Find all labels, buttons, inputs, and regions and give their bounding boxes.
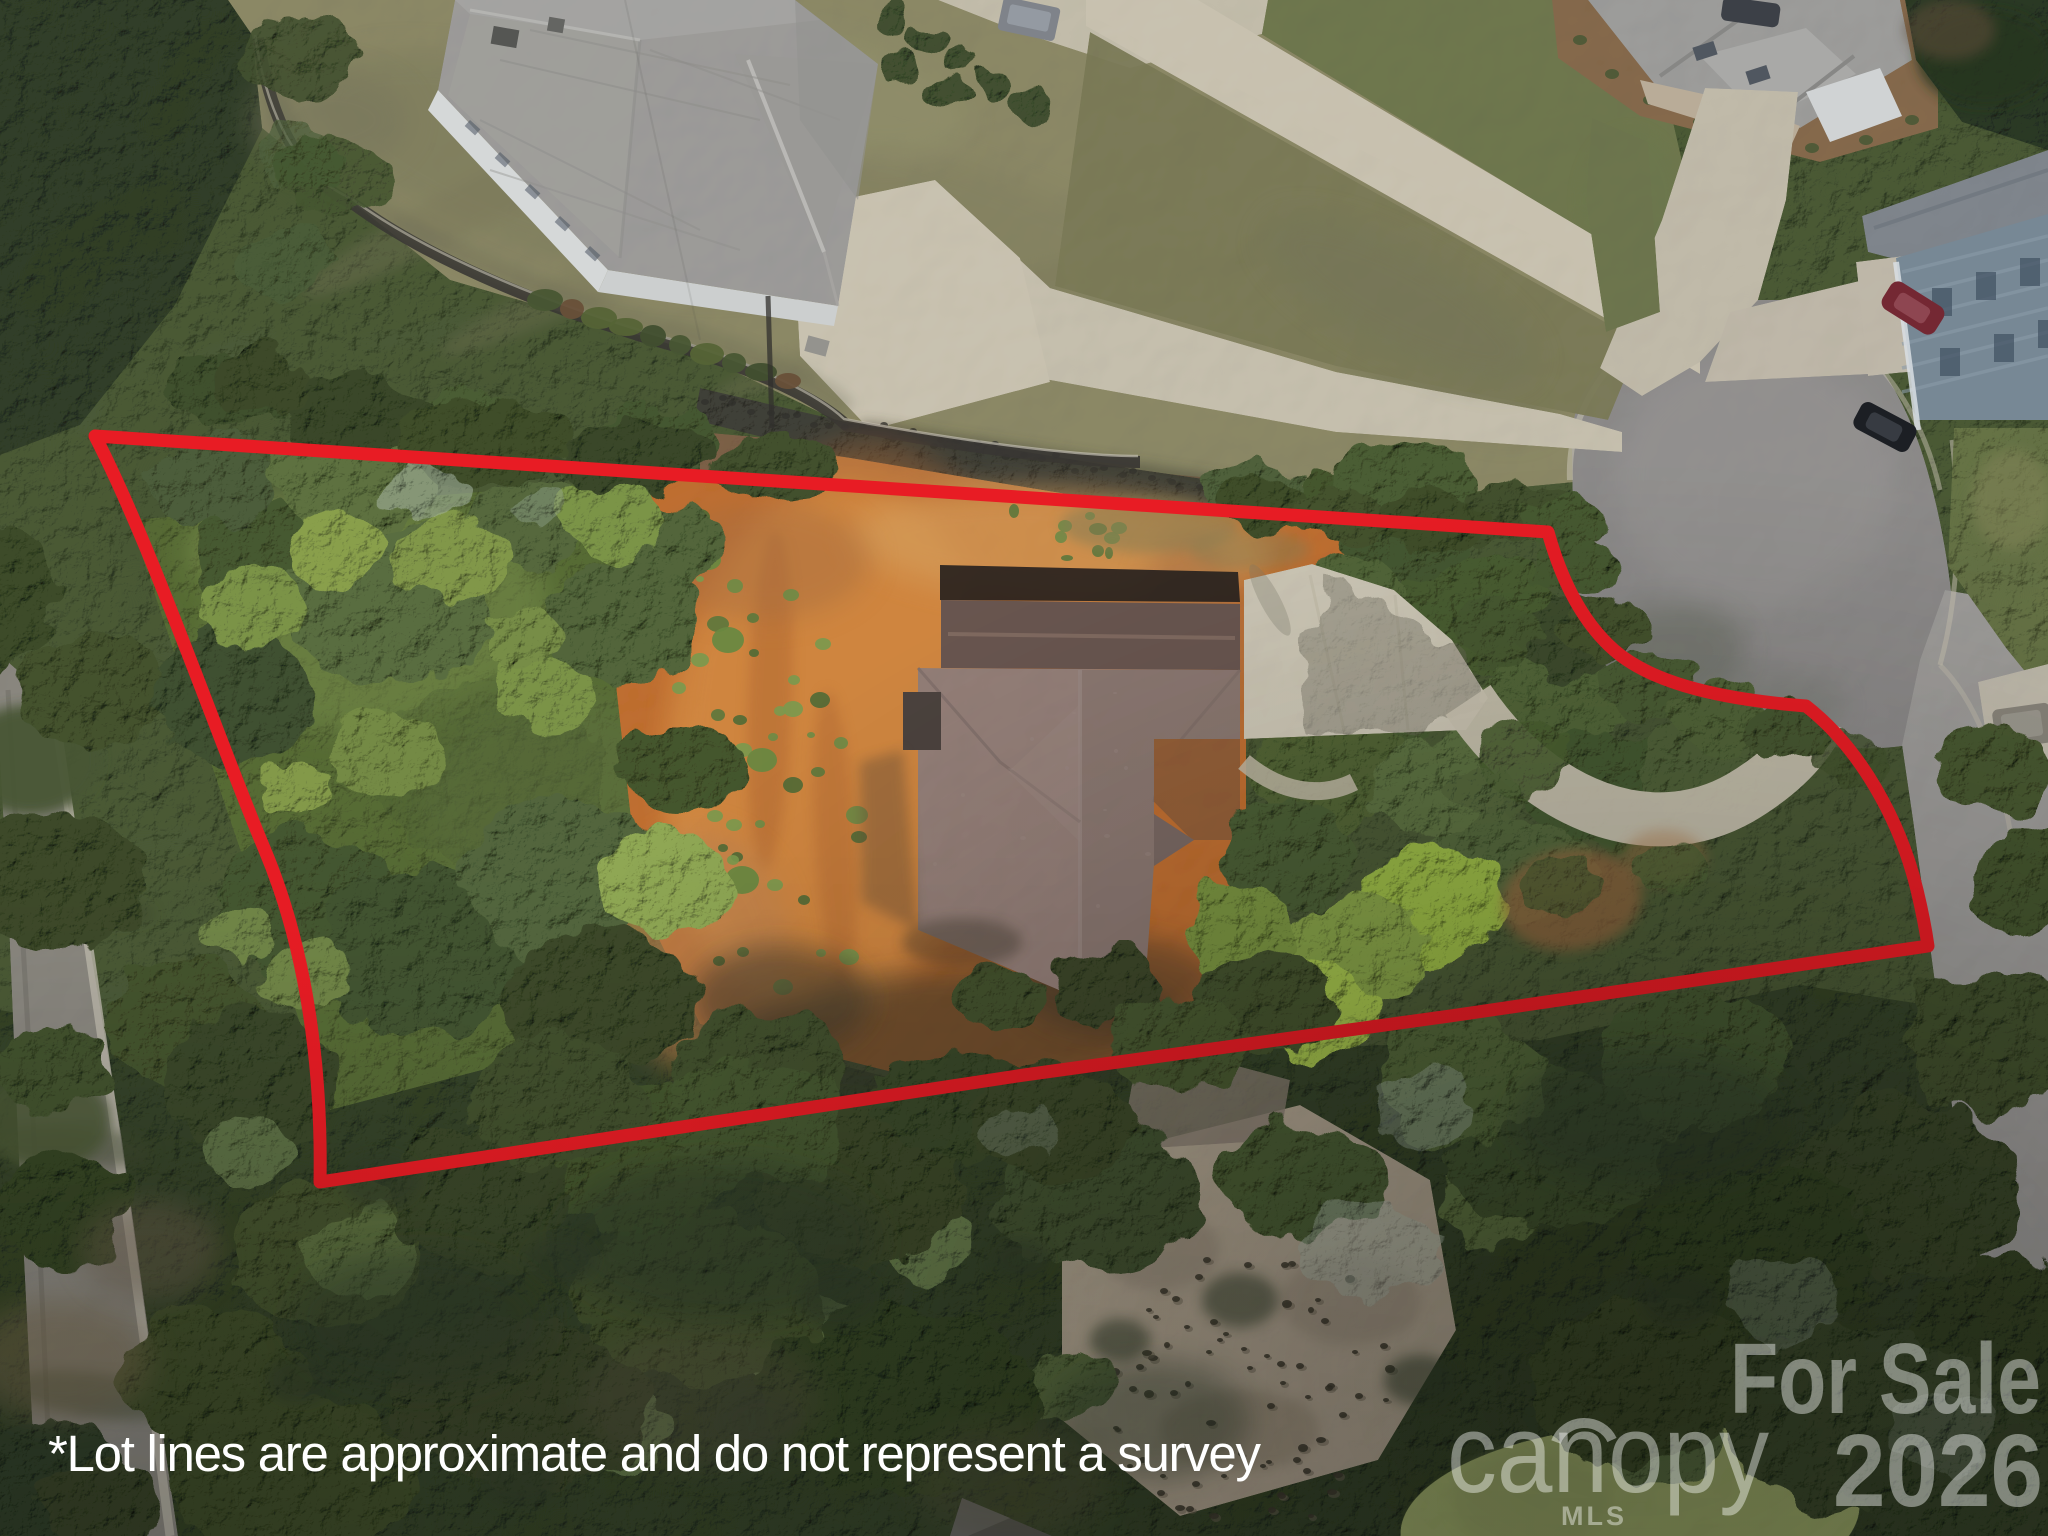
svg-text:MLS: MLS bbox=[1561, 1501, 1627, 1531]
svg-text:2026: 2026 bbox=[1833, 1413, 2043, 1528]
svg-text:canopy: canopy bbox=[1447, 1391, 1769, 1516]
svg-text:*Lot lines are approximate and: *Lot lines are approximate and do not re… bbox=[48, 1425, 1262, 1482]
